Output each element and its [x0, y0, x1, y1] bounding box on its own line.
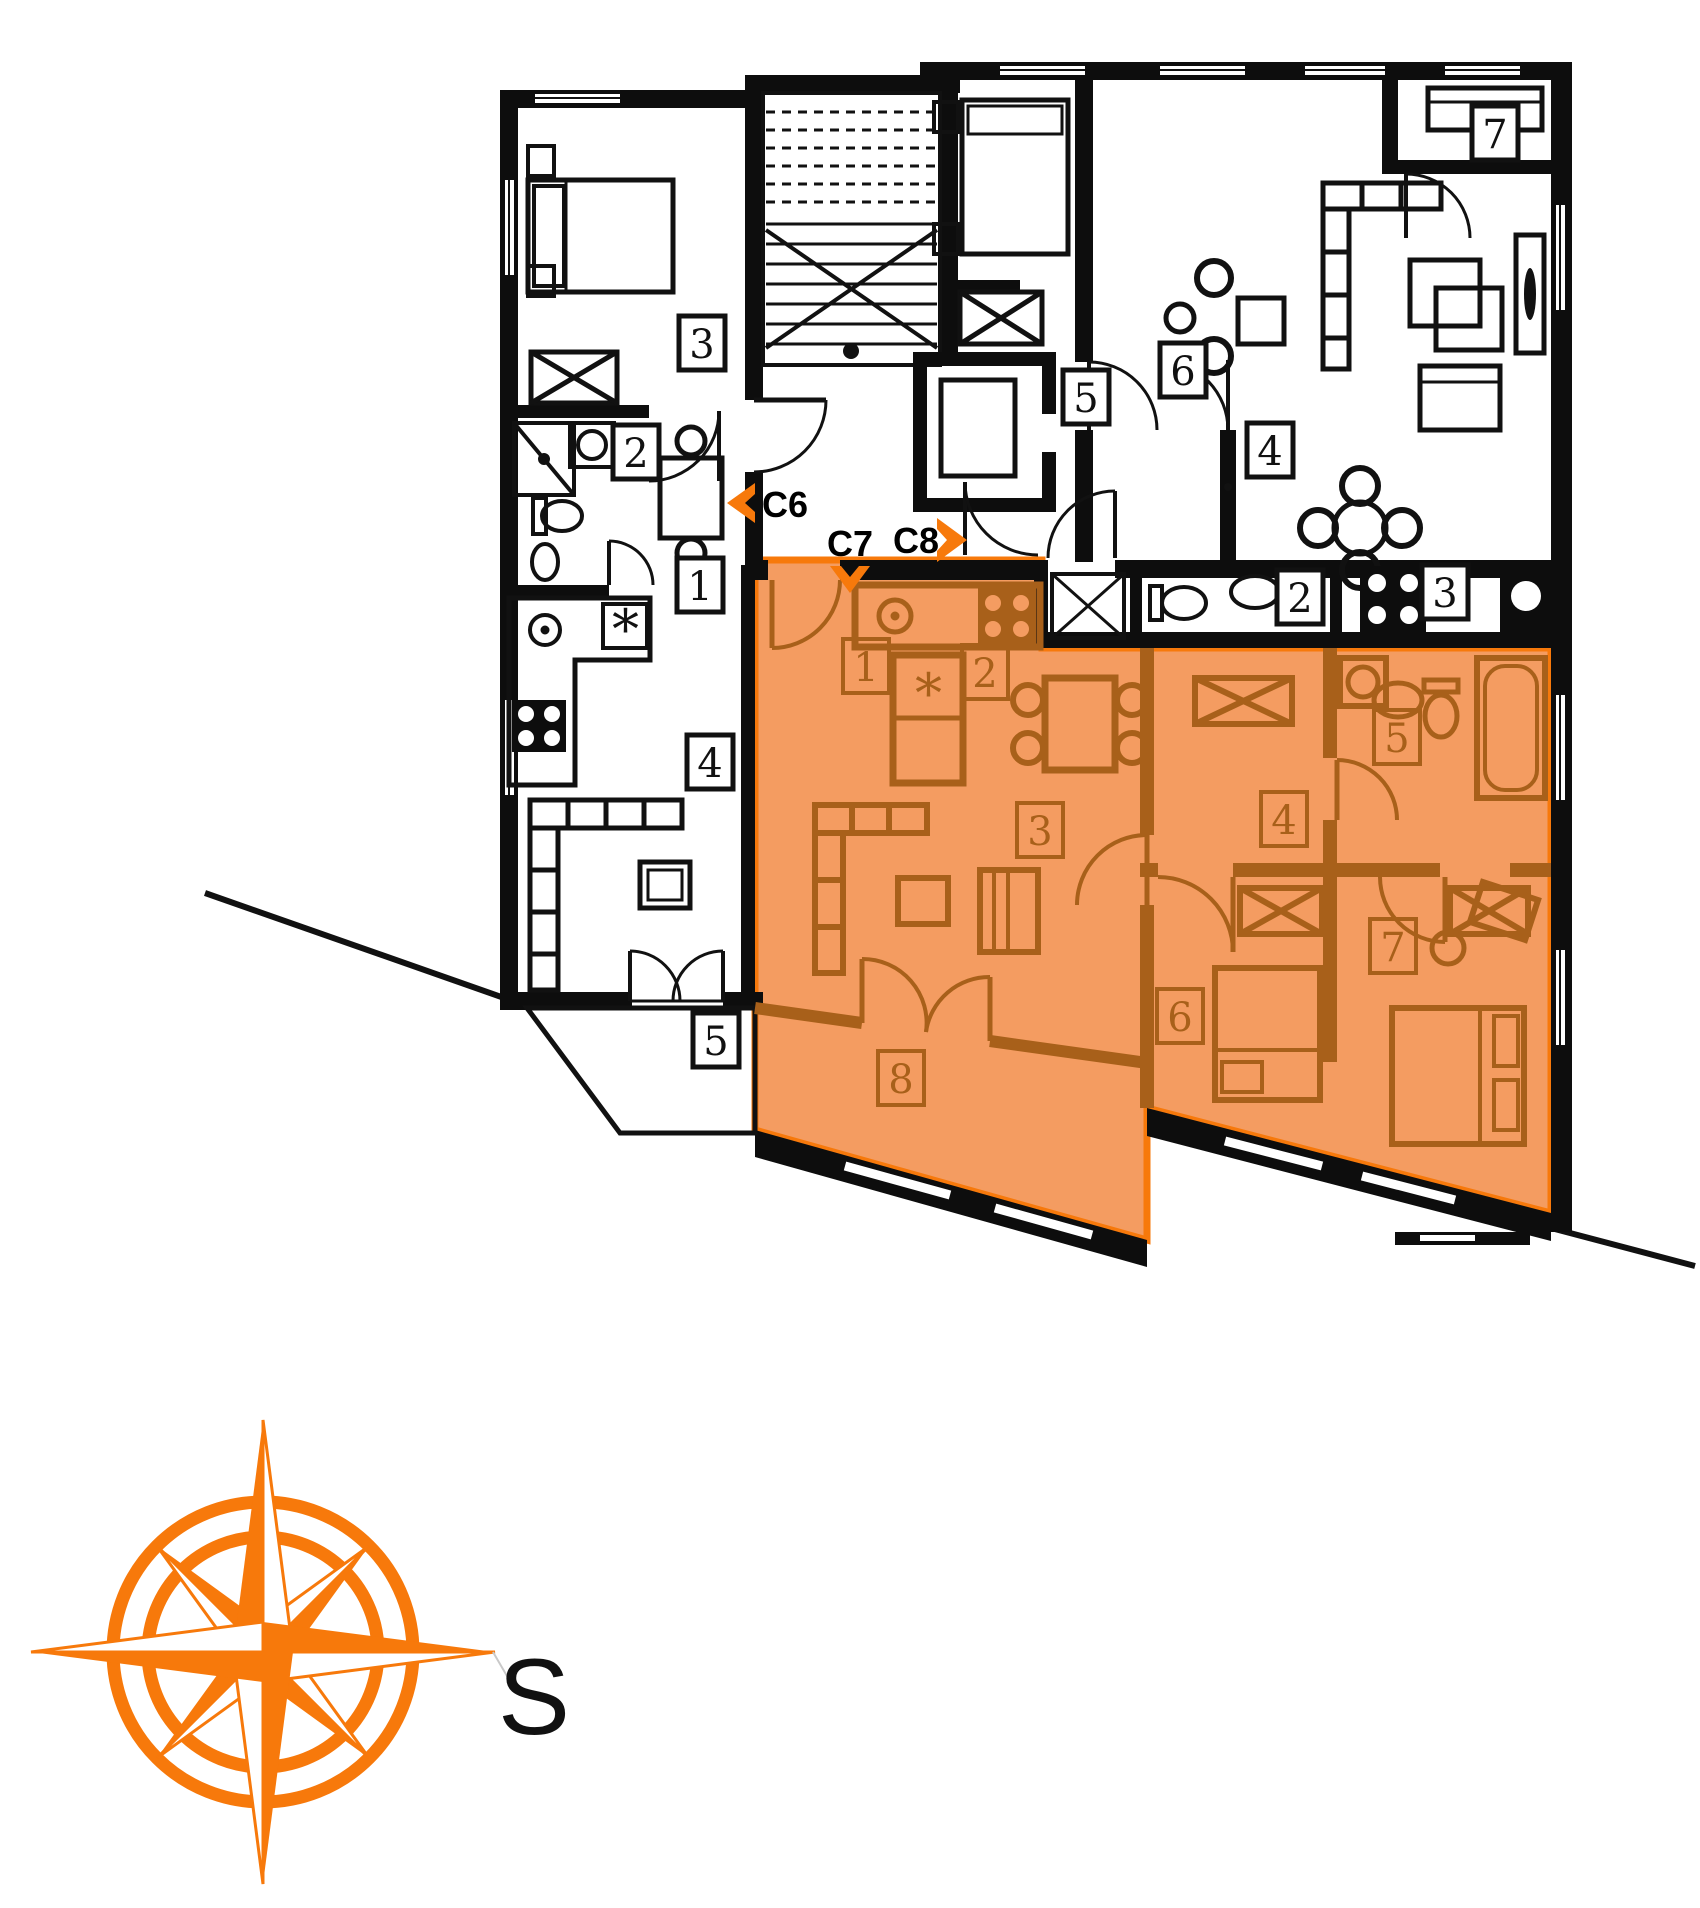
shower-icon [1052, 574, 1124, 638]
nightstand [528, 146, 554, 176]
sink-icon [532, 544, 558, 580]
svg-text:4: 4 [697, 741, 722, 787]
hall-door [965, 482, 1038, 555]
coffee-table [1410, 260, 1480, 326]
svg-text:5: 5 [1073, 376, 1098, 422]
svg-text:8: 8 [888, 1057, 913, 1103]
room-label-c8-7: 7 [1472, 106, 1518, 160]
bed-pillow [968, 106, 1062, 134]
armchair [1420, 366, 1500, 430]
room-label-c6-2: 2 [613, 425, 659, 479]
room-label-c8-6: 6 [1160, 343, 1206, 397]
svg-text:C7: C7 [827, 523, 873, 564]
round-table [1334, 502, 1386, 554]
svg-text:7: 7 [1380, 925, 1405, 971]
svg-text:2: 2 [972, 651, 997, 697]
svg-text:1: 1 [853, 645, 878, 691]
small-table [1238, 298, 1284, 344]
compass-long-points [31, 1420, 495, 1884]
hob-icon [512, 700, 566, 752]
room-label-c8-5: 5 [1063, 370, 1109, 424]
chair [677, 427, 705, 455]
elevator [913, 352, 1056, 512]
svg-text:5: 5 [703, 1019, 728, 1065]
svg-text:1: 1 [687, 564, 712, 610]
chair [1342, 468, 1378, 504]
svg-text:3: 3 [1432, 571, 1457, 617]
coffee-table [1436, 288, 1502, 350]
svg-text:3: 3 [689, 322, 714, 368]
chair [1300, 510, 1336, 546]
svg-text:3: 3 [1027, 809, 1052, 855]
bathroom-door [609, 541, 653, 585]
room-label-c6-1: 1 [677, 558, 723, 612]
unit-label-c6[interactable]: C6 [727, 483, 808, 525]
sofa [1323, 183, 1441, 369]
shower-icon [514, 423, 574, 495]
room-label-c6-3: 3 [679, 316, 725, 370]
svg-text:6: 6 [1167, 995, 1192, 1041]
dining-table [660, 458, 722, 538]
c6-entrance-door [754, 400, 826, 472]
chair [1197, 261, 1231, 295]
c8-arrow-icon [937, 518, 967, 562]
bed [528, 180, 673, 292]
svg-text:6: 6 [1170, 349, 1195, 395]
wardrobe-icon [531, 352, 617, 403]
room-label-c6-4: 4 [687, 735, 733, 789]
compass-rose [31, 1420, 495, 1884]
hob-icon [978, 588, 1036, 644]
unit-label-c8[interactable]: C8 [893, 518, 967, 562]
room-label-c8-2: 2 [1277, 570, 1323, 624]
svg-text:2: 2 [1287, 576, 1312, 622]
south-label: S [498, 1636, 570, 1757]
svg-text:4: 4 [1271, 798, 1296, 844]
sink-icon [1231, 576, 1279, 608]
room-label-c8-3: 3 [1422, 565, 1468, 619]
fridge-symbol: * [915, 662, 942, 725]
svg-text:7: 7 [1482, 112, 1507, 158]
fridge-symbol: * [612, 598, 639, 661]
svg-text:C6: C6 [762, 484, 808, 525]
svg-text:C8: C8 [893, 520, 939, 561]
svg-text:4: 4 [1257, 429, 1282, 475]
bed-pillow [534, 186, 564, 286]
stairwell [763, 93, 940, 365]
hob-icon [1360, 566, 1426, 632]
balcony-door [630, 951, 723, 1001]
wardrobe-icon [960, 292, 1042, 344]
room-label-c6-5: 5 [693, 1013, 739, 1067]
svg-text:2: 2 [623, 431, 648, 477]
lower-step-window [1420, 1235, 1475, 1241]
chair [1384, 510, 1420, 546]
toilet-icon [533, 498, 546, 534]
floor-plan-svg: 1 2 3 4 5 2 3 4 [0, 0, 1700, 1908]
svg-text:5: 5 [1384, 716, 1409, 762]
bed [962, 100, 1068, 254]
floorplan-page: 1 2 3 4 5 2 3 4 [0, 0, 1700, 1908]
side-table [1166, 304, 1194, 332]
room-label-c8-4: 4 [1247, 423, 1293, 477]
